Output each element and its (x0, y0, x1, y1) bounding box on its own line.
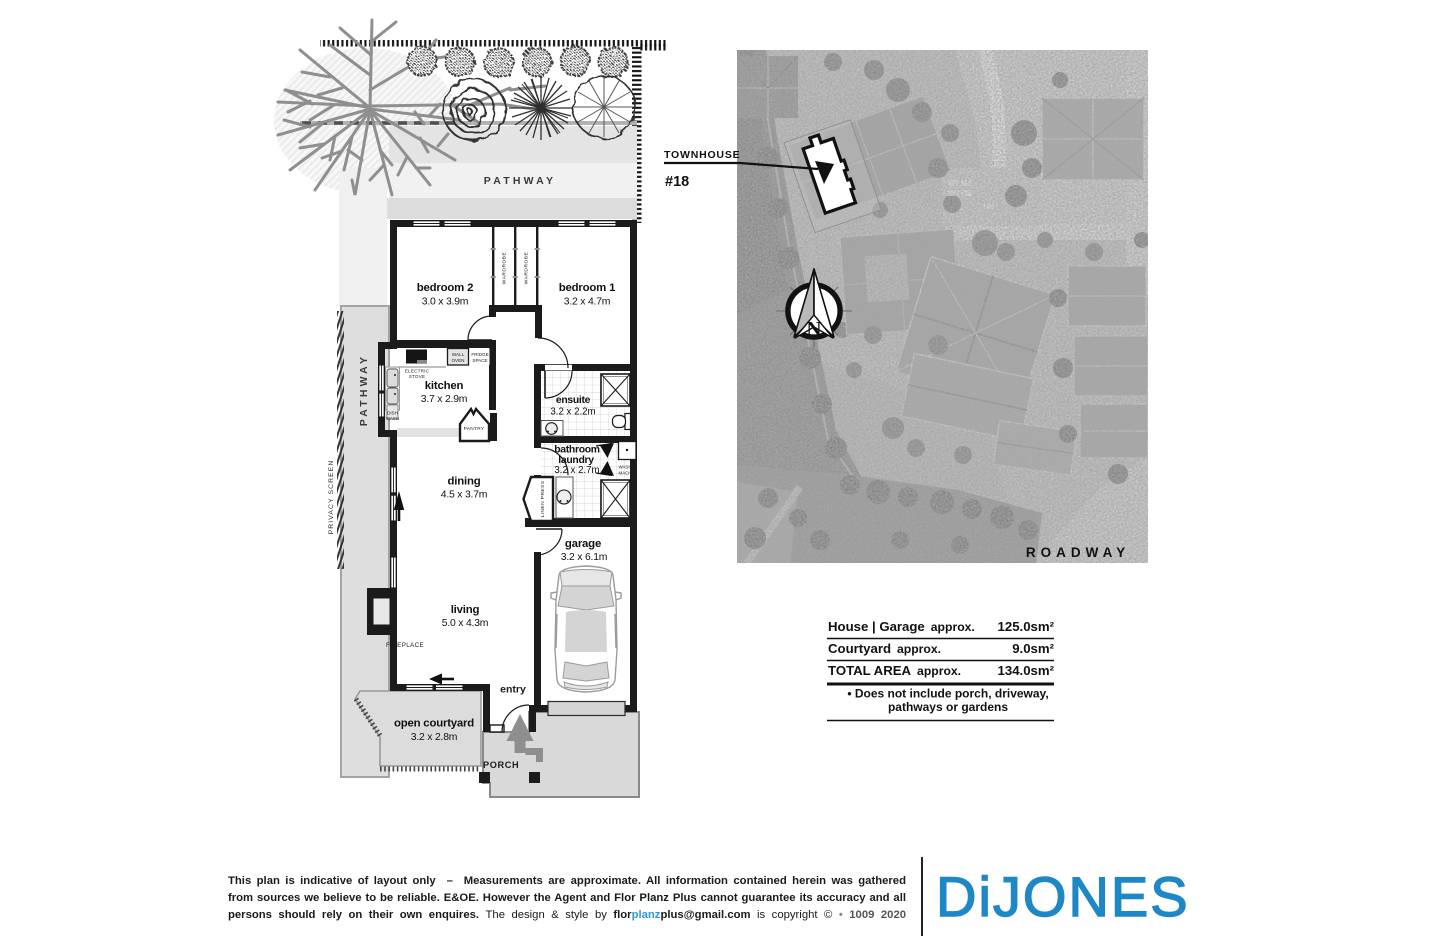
svg-text:garage: garage (565, 538, 601, 550)
svg-text:FRIDGE: FRIDGE (471, 352, 488, 357)
svg-text:LINEN PRESS: LINEN PRESS (540, 480, 546, 517)
svg-text:House | Garageapprox.: House | Garageapprox. (828, 619, 975, 634)
svg-text:ensuite: ensuite (556, 395, 591, 406)
svg-text:entry: entry (500, 684, 526, 696)
svg-text:PANTRY: PANTRY (464, 426, 485, 432)
svg-text:3.2 x 2.2m: 3.2 x 2.2m (550, 407, 595, 418)
svg-text:WASH: WASH (618, 465, 631, 470)
svg-text:WALL: WALL (452, 352, 465, 357)
svg-text:living: living (451, 604, 480, 616)
svg-text:4.5 x 3.7m: 4.5 x 3.7m (441, 490, 488, 501)
svg-text:3.2 x 2.7m: 3.2 x 2.7m (554, 465, 599, 476)
svg-text:PORCH: PORCH (483, 760, 519, 770)
svg-text:ELECTRIC: ELECTRIC (405, 369, 430, 374)
svg-text:MACH: MACH (619, 470, 632, 475)
svg-text:open courtyard: open courtyard (394, 718, 474, 730)
svg-text:WASH: WASH (386, 416, 399, 421)
svg-text:kitchen: kitchen (425, 380, 464, 392)
svg-text:3.0 x 3.9m: 3.0 x 3.9m (422, 297, 469, 308)
svg-text:N: N (806, 317, 821, 341)
svg-text:3.2 x 4.7m: 3.2 x 4.7m (564, 297, 611, 308)
svg-text:PATHWAY: PATHWAY (484, 175, 556, 187)
svg-text:5.0 x 4.3m: 5.0 x 4.3m (442, 618, 489, 629)
svg-text:134.0sm²: 134.0sm² (998, 663, 1055, 678)
svg-text:TOTAL AREAapprox.: TOTAL AREAapprox. (828, 663, 961, 678)
svg-text:PRIVACY SCREEN: PRIVACY SCREEN (328, 460, 335, 535)
svg-text:OVEN: OVEN (451, 358, 464, 363)
svg-text:3.2 x 6.1m: 3.2 x 6.1m (561, 552, 608, 563)
svg-text:PATHWAY: PATHWAY (358, 354, 370, 426)
svg-text:ROADWAY: ROADWAY (1026, 545, 1130, 560)
svg-text:bedroom 1: bedroom 1 (559, 282, 616, 294)
svg-text:bedroom 2: bedroom 2 (417, 282, 473, 294)
svg-text:FIREPLACE: FIREPLACE (386, 642, 424, 649)
svg-text:TOWNHOUSE: TOWNHOUSE (664, 149, 740, 161)
svg-text:Courtyardapprox.: Courtyardapprox. (828, 641, 941, 656)
svg-text:#18: #18 (665, 174, 689, 190)
svg-text:STOVE: STOVE (409, 374, 426, 379)
svg-text:125.0sm²: 125.0sm² (998, 619, 1055, 634)
svg-text:WARDROBE: WARDROBE (502, 251, 508, 284)
svg-text:9.0sm²: 9.0sm² (1012, 641, 1054, 656)
svg-text:3.7 x 2.9m: 3.7 x 2.9m (421, 394, 468, 405)
svg-text:• Does not include porch, driv: • Does not include porch, driveway, (847, 687, 1048, 701)
svg-text:3.2 x 2.8m: 3.2 x 2.8m (411, 732, 458, 743)
svg-text:WARDROBE: WARDROBE (524, 251, 530, 284)
svg-text:SPACE: SPACE (472, 358, 487, 363)
svg-text:dining: dining (448, 476, 481, 488)
svg-text:pathways or gardens: pathways or gardens (888, 700, 1008, 714)
